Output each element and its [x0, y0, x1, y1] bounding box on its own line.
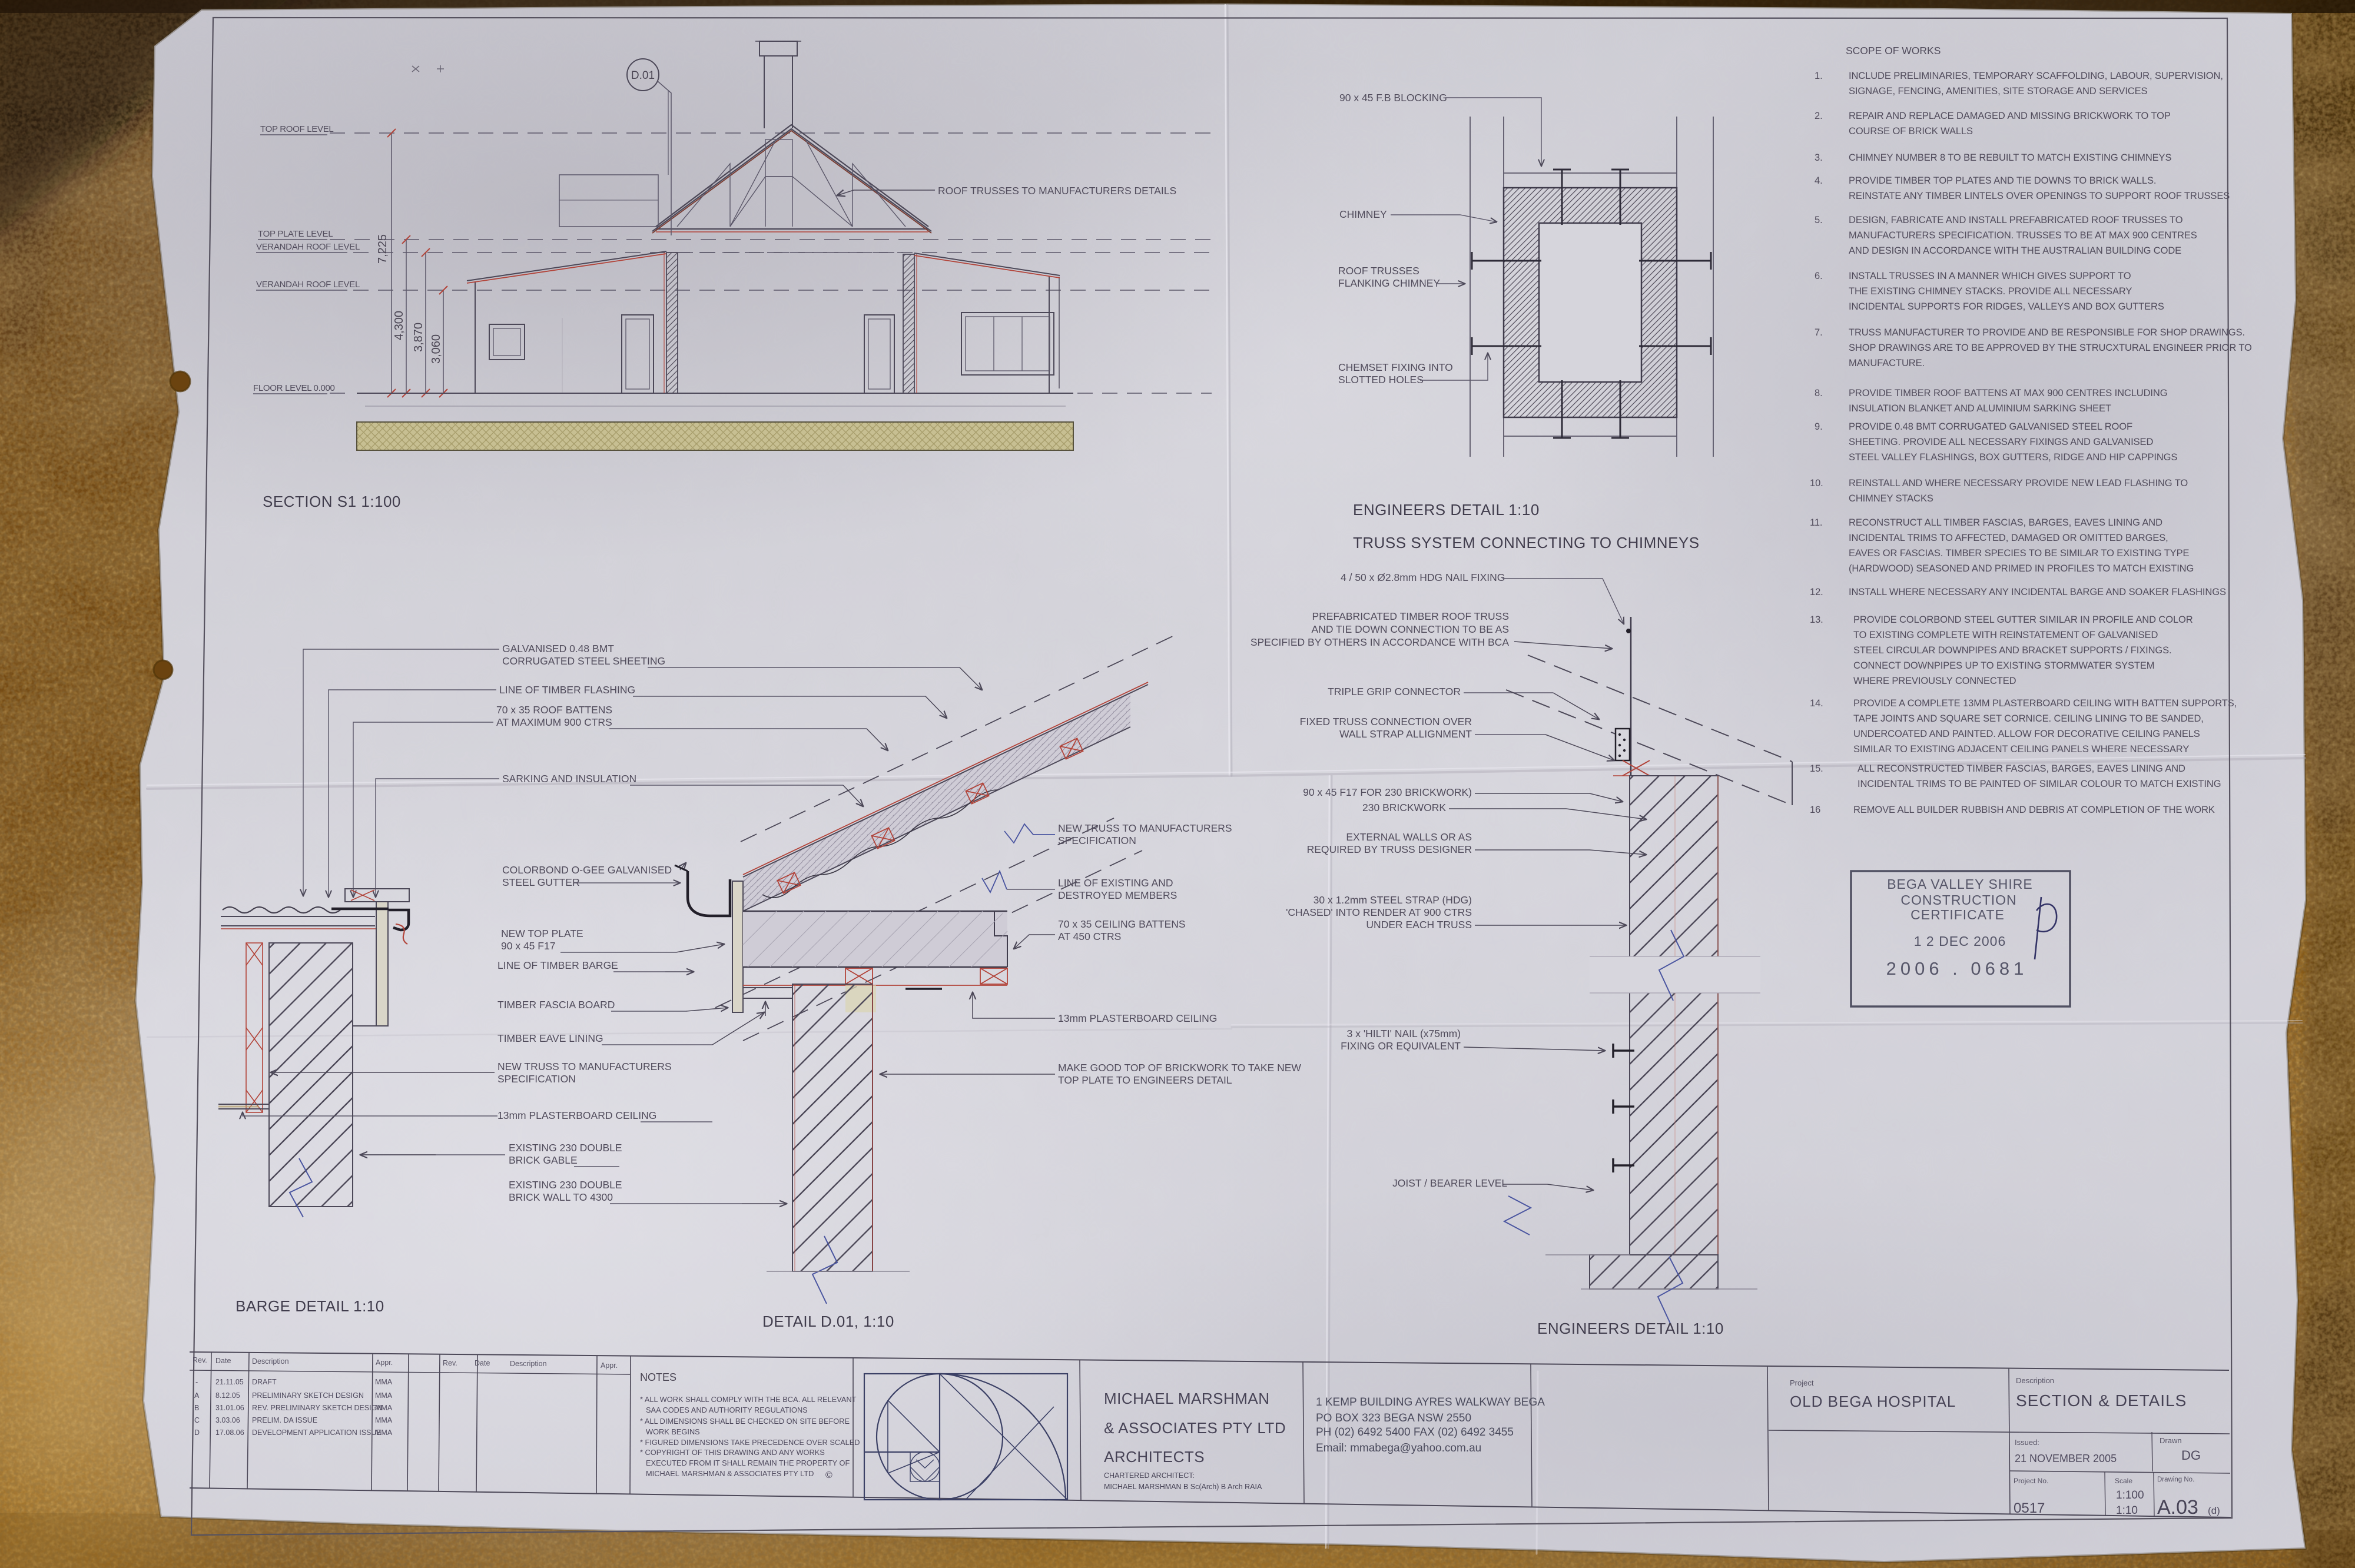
svg-text:3,870: 3,870 [412, 323, 425, 352]
svg-text:6.: 6. [1815, 271, 1823, 281]
svg-text:Issued:: Issued: [2015, 1438, 2039, 1447]
svg-text:Appr.: Appr. [601, 1361, 618, 1370]
svg-text:21 NOVEMBER 2005: 21 NOVEMBER 2005 [2015, 1453, 2117, 1464]
svg-text:ENGINEERS DETAIL 1:10: ENGINEERS DETAIL 1:10 [1353, 501, 1540, 519]
svg-text:Date: Date [215, 1357, 231, 1365]
svg-text:(d): (d) [2208, 1505, 2220, 1516]
svg-text:A.03: A.03 [2157, 1496, 2198, 1519]
svg-text:MAKE GOOD TOP OF BRICKWORK TO: MAKE GOOD TOP OF BRICKWORK TO TAKE NEW [1058, 1062, 1301, 1074]
svg-text:COLORBOND O-GEE GALVANISED: COLORBOND O-GEE GALVANISED [502, 864, 672, 876]
svg-text:4,300: 4,300 [393, 311, 406, 340]
svg-text:'CHASED' INTO RENDER AT 900 CT: 'CHASED' INTO RENDER AT 900 CTRS [1286, 906, 1472, 918]
svg-text:PRELIM. DA ISSUE: PRELIM. DA ISSUE [252, 1416, 317, 1424]
svg-text:-: - [195, 1378, 198, 1386]
svg-text:D: D [194, 1429, 200, 1437]
svg-text:NEW TRUSS TO MANUFACTURERS: NEW TRUSS TO MANUFACTURERS [1058, 822, 1232, 834]
svg-text:PREFABRICATED TIMBER ROOF TRUS: PREFABRICATED TIMBER ROOF TRUSS [1312, 610, 1510, 622]
svg-text:& ASSOCIATES PTY LTD: & ASSOCIATES PTY LTD [1104, 1419, 1286, 1437]
svg-text:AT MAXIMUM 900 CTRS: AT MAXIMUM 900 CTRS [496, 716, 612, 728]
svg-text:1:100: 1:100 [2116, 1489, 2144, 1501]
svg-text:SECTION S1 1:100: SECTION S1 1:100 [263, 493, 401, 510]
svg-text:MICHAEL MARSHMAN B Sc(Arch) B: MICHAEL MARSHMAN B Sc(Arch) B Arch RAIA [1104, 1483, 1262, 1491]
svg-text:Description: Description [2016, 1376, 2054, 1385]
svg-text:PROVIDE A COMPLETE 13MM PLASTE: PROVIDE A COMPLETE 13MM PLASTERBOARD CEI… [1853, 698, 2237, 709]
svg-text:PROVIDE TIMBER TOP PLATES AND: PROVIDE TIMBER TOP PLATES AND TIE DOWNS … [1849, 175, 2156, 186]
svg-text:CONNECT DOWNPIPES UP TO EXISTI: CONNECT DOWNPIPES UP TO EXISTING STORMWA… [1853, 660, 2154, 671]
svg-text:4.: 4. [1815, 175, 1823, 186]
svg-text:MANUFACTURERS SPECIFICATION. T: MANUFACTURERS SPECIFICATION. TRUSSES TO … [1849, 230, 2197, 241]
svg-text:BRICK GABLE: BRICK GABLE [509, 1154, 578, 1166]
svg-text:11.: 11. [1810, 517, 1822, 528]
svg-text:DG: DG [2181, 1448, 2201, 1463]
svg-text:SPECIFICATION: SPECIFICATION [497, 1073, 576, 1085]
svg-text:1:10: 1:10 [2116, 1504, 2138, 1517]
svg-text:* COPYRIGHT OF THIS DRAWING AN: * COPYRIGHT OF THIS DRAWING AND ANY WORK… [640, 1448, 825, 1457]
svg-text:STEEL GUTTER: STEEL GUTTER [502, 876, 580, 888]
svg-text:CHIMNEY NUMBER 8 TO BE REBUILT: CHIMNEY NUMBER 8 TO BE REBUILT TO MATCH … [1849, 152, 2171, 163]
svg-text:TRUSS MANUFACTURER TO PROVIDE: TRUSS MANUFACTURER TO PROVIDE AND BE RES… [1849, 327, 2245, 338]
svg-text:STEEL CIRCULAR DOWNPIPES AND B: STEEL CIRCULAR DOWNPIPES AND BRACKET SUP… [1853, 645, 2172, 656]
svg-text:8.: 8. [1815, 388, 1823, 398]
svg-text:TOP PLATE LEVEL: TOP PLATE LEVEL [258, 229, 333, 239]
svg-text:1 2 DEC 2006: 1 2 DEC 2006 [1914, 934, 2006, 949]
svg-text:MMA: MMA [375, 1391, 393, 1400]
svg-text:WORK BEGINS: WORK BEGINS [646, 1427, 700, 1436]
svg-text:9.: 9. [1815, 421, 1823, 432]
svg-text:12.: 12. [1810, 587, 1823, 597]
svg-text:EXISTING 230 DOUBLE: EXISTING 230 DOUBLE [509, 1179, 622, 1191]
svg-text:SLOTTED HOLES: SLOTTED HOLES [1338, 374, 1424, 386]
svg-text:4 / 50 x Ø2.8mm HDG NAIL FIXIN: 4 / 50 x Ø2.8mm HDG NAIL FIXING [1341, 572, 1505, 583]
svg-text:UNDERCOATED AND PAINTED. ALLOW: UNDERCOATED AND PAINTED. ALLOW FOR DECOR… [1853, 729, 2200, 739]
svg-text:WALL STRAP ALLIGNMENT: WALL STRAP ALLIGNMENT [1339, 728, 1472, 740]
svg-text:TRIPLE GRIP CONNECTOR: TRIPLE GRIP CONNECTOR [1328, 686, 1461, 697]
svg-text:1 KEMP BUILDING AYRES WALKWAY: 1 KEMP BUILDING AYRES WALKWAY BEGA [1316, 1396, 1545, 1408]
svg-text:SARKING AND INSULATION: SARKING AND INSULATION [502, 773, 636, 785]
svg-text:OLD BEGA HOSPITAL: OLD BEGA HOSPITAL [1790, 1393, 1956, 1410]
svg-text:EXISTING 230 DOUBLE: EXISTING 230 DOUBLE [509, 1142, 622, 1154]
svg-text:ARCHITECTS: ARCHITECTS [1104, 1448, 1205, 1466]
svg-text:MICHAEL MARSHMAN: MICHAEL MARSHMAN [1104, 1390, 1270, 1407]
svg-text:Scale: Scale [2115, 1477, 2132, 1485]
svg-text:Project: Project [1790, 1378, 1814, 1387]
svg-text:DEVELOPMENT APPLICATION ISSUE: DEVELOPMENT APPLICATION ISSUE [252, 1429, 382, 1437]
svg-text:90 x 45 F.B BLOCKING: 90 x 45 F.B BLOCKING [1339, 92, 1447, 104]
svg-text:21.11.05: 21.11.05 [215, 1378, 244, 1386]
svg-text:Date: Date [475, 1359, 490, 1367]
svg-text:13mm PLASTERBOARD CEILING: 13mm PLASTERBOARD CEILING [1058, 1012, 1217, 1024]
svg-text:ROOF TRUSSES: ROOF TRUSSES [1338, 265, 1419, 277]
svg-text:ENGINEERS DETAIL 1:10: ENGINEERS DETAIL 1:10 [1537, 1320, 1724, 1337]
svg-text:PH (02) 6492 5400 FAX (02) 6: PH (02) 6492 5400 FAX (02) 6492 3455 [1316, 1426, 1514, 1439]
svg-text:SPECIFICATION: SPECIFICATION [1058, 835, 1136, 846]
svg-text:MANUFACTURE.: MANUFACTURE. [1849, 358, 1925, 368]
svg-text:PROVIDE COLORBOND STEEL GUTTER: PROVIDE COLORBOND STEEL GUTTER SIMILAR I… [1853, 614, 2193, 625]
svg-text:7,225: 7,225 [376, 234, 389, 264]
svg-text:BARGE DETAIL 1:10: BARGE DETAIL 1:10 [235, 1297, 384, 1315]
svg-text:SIGNAGE, FENCING, AMENITIES, S: SIGNAGE, FENCING, AMENITIES, SITE STORAG… [1849, 86, 2148, 97]
svg-text:70 x 35 ROOF BATTENS: 70 x 35 ROOF BATTENS [496, 704, 612, 716]
svg-text:FIXING OR EQUIVALENT: FIXING OR EQUIVALENT [1341, 1040, 1461, 1052]
svg-text:AT 450 CTRS: AT 450 CTRS [1058, 931, 1121, 942]
svg-text:NEW TRUSS TO MANUFACTURERS: NEW TRUSS TO MANUFACTURERS [497, 1061, 672, 1072]
svg-text:BRICK WALL TO 4300: BRICK WALL TO 4300 [509, 1191, 613, 1203]
svg-text:EAVES OR FASCIAS. TIMBER SPECI: EAVES OR FASCIAS. TIMBER SPECIES TO BE S… [1849, 548, 2189, 559]
svg-text:(HARDWOOD) SEASONED AND PRIMED: (HARDWOOD) SEASONED AND PRIMED IN PROFIL… [1849, 563, 2194, 574]
svg-text:REQUIRED BY TRUSS DESIGNER: REQUIRED BY TRUSS DESIGNER [1307, 843, 1472, 855]
svg-text:TOP ROOF LEVEL: TOP ROOF LEVEL [260, 124, 333, 134]
svg-text:B: B [194, 1404, 199, 1412]
svg-text:A: A [194, 1391, 200, 1400]
svg-text:INCIDENTAL TRIMS TO AFFECTED,: INCIDENTAL TRIMS TO AFFECTED, DAMAGED OR… [1849, 533, 2168, 543]
svg-text:©: © [825, 1470, 832, 1480]
svg-text:90 x 45 F17 FOR 230 BRICKWORK): 90 x 45 F17 FOR 230 BRICKWORK) [1303, 786, 1472, 798]
svg-text:SHEETING. PROVIDE ALL NECESSAR: SHEETING. PROVIDE ALL NECESSARY FIXINGS … [1849, 437, 2153, 447]
svg-text:AND DESIGN IN ACCORDANCE WITH: AND DESIGN IN ACCORDANCE WITH THE AUSTRA… [1849, 245, 2181, 256]
svg-text:D.01: D.01 [631, 69, 655, 82]
svg-text:BEGA VALLEY SHIRE: BEGA VALLEY SHIRE [1887, 876, 2033, 892]
svg-text:UNDER EACH TRUSS: UNDER EACH TRUSS [1366, 919, 1472, 931]
svg-text:REPAIR AND REPLACE DAMAGED AND: REPAIR AND REPLACE DAMAGED AND MISSING B… [1849, 111, 2171, 121]
svg-text:3,060: 3,060 [430, 334, 443, 364]
svg-text:INSULATION BLANKET AND ALUMINI: INSULATION BLANKET AND ALUMINIUM SARKING… [1849, 403, 2111, 414]
svg-text:NEW TOP PLATE: NEW TOP PLATE [501, 928, 583, 939]
svg-text:PROVIDE 0.48 BMT CORRUGATED GA: PROVIDE 0.48 BMT CORRUGATED GALVANISED S… [1849, 421, 2132, 432]
svg-text:MICHAEL MARSHMAN & ASSOCIATES: MICHAEL MARSHMAN & ASSOCIATES PTY LTD [646, 1469, 814, 1478]
svg-text:TOP PLATE TO ENGINEERS DETAIL: TOP PLATE TO ENGINEERS DETAIL [1058, 1074, 1232, 1086]
svg-text:THE EXISTING CHIMNEY STACKS. P: THE EXISTING CHIMNEY STACKS. PROVIDE ALL… [1849, 286, 2132, 297]
svg-text:TIMBER FASCIA BOARD: TIMBER FASCIA BOARD [497, 999, 615, 1011]
svg-text:JOIST / BEARER LEVEL: JOIST / BEARER LEVEL [1392, 1177, 1507, 1189]
svg-text:C: C [194, 1416, 200, 1424]
svg-text:DESIGN, FABRICATE AND INSTALL: DESIGN, FABRICATE AND INSTALL PREFABRICA… [1849, 215, 2183, 225]
svg-text:CHARTERED ARCHITECT:: CHARTERED ARCHITECT: [1104, 1471, 1195, 1480]
svg-text:VERANDAH ROOF LEVEL: VERANDAH ROOF LEVEL [256, 242, 360, 252]
svg-text:* FIGURED DIMENSIONS TAKE PREC: * FIGURED DIMENSIONS TAKE PRECEDENCE OVE… [640, 1438, 860, 1447]
svg-text:CHIMNEY STACKS: CHIMNEY STACKS [1849, 493, 1933, 504]
svg-text:10.: 10. [1810, 478, 1823, 489]
svg-text:FLANKING CHIMNEY: FLANKING CHIMNEY [1338, 277, 1440, 289]
svg-text:REINSTATE ANY TIMBER LINTELS O: REINSTATE ANY TIMBER LINTELS OVER OPENIN… [1849, 191, 2230, 201]
svg-text:Drawing No.: Drawing No. [2157, 1476, 2194, 1483]
svg-text:SAA CODES AND AUTHORITY REGULA: SAA CODES AND AUTHORITY REGULATIONS [646, 1406, 808, 1414]
svg-text:GALVANISED 0.48 BMT: GALVANISED 0.48 BMT [502, 643, 614, 655]
svg-text:TO EXISTING COMPLETE WITH REIN: TO EXISTING COMPLETE WITH REINSTATEMENT … [1853, 630, 2158, 640]
svg-text:* ALL WORK SHALL COMPLY WITH T: * ALL WORK SHALL COMPLY WITH THE BCA. AL… [640, 1395, 857, 1404]
svg-text:16: 16 [1810, 805, 1820, 815]
svg-text:Description: Description [252, 1357, 289, 1366]
svg-text:SHOP DRAWINGS ARE TO BE APPROV: SHOP DRAWINGS ARE TO BE APPROVED BY THE … [1849, 343, 2252, 353]
svg-text:INCIDENTAL TRIMS TO BE PAINTED: INCIDENTAL TRIMS TO BE PAINTED OF SIMILA… [1858, 779, 2221, 789]
svg-text:1.: 1. [1815, 71, 1823, 81]
svg-text:CERTIFICATE: CERTIFICATE [1910, 907, 2005, 922]
svg-text:MMA: MMA [375, 1404, 393, 1412]
svg-text:STEEL VALLEY FLASHINGS, BOX GU: STEEL VALLEY FLASHINGS, BOX GUTTERS, RID… [1849, 452, 2177, 463]
svg-text:ROOF TRUSSES TO MANUFACTURERS: ROOF TRUSSES TO MANUFACTURERS DETAILS [938, 185, 1176, 197]
svg-text:RECONSTRUCT ALL TIMBER FASCIAS: RECONSTRUCT ALL TIMBER FASCIAS, BARGES, … [1849, 517, 2162, 528]
svg-text:30 x 1.2mm STEEL STRAP (HDG): 30 x 1.2mm STEEL STRAP (HDG) [1314, 894, 1472, 906]
svg-text:5.: 5. [1815, 215, 1823, 225]
svg-text:0517: 0517 [2014, 1500, 2045, 1516]
svg-text:EXECUTED FROM IT SHALL REMAIN: EXECUTED FROM IT SHALL REMAIN THE PROPER… [646, 1459, 850, 1467]
svg-text:31.01.06: 31.01.06 [215, 1404, 244, 1412]
svg-text:Project No.: Project No. [2014, 1477, 2048, 1485]
svg-text:PROVIDE TIMBER ROOF BATTENS AT: PROVIDE TIMBER ROOF BATTENS AT MAX 900 C… [1849, 388, 2167, 398]
svg-text:INCIDENTAL SUPPORTS FOR RIDGES: INCIDENTAL SUPPORTS FOR RIDGES, VALLEYS … [1849, 301, 2164, 312]
svg-text:SPECIFIED BY OTHERS IN ACCORDA: SPECIFIED BY OTHERS IN ACCORDANCE WITH B… [1251, 636, 1510, 648]
svg-text:REV. PRELIMINARY SKETCH DESIGN: REV. PRELIMINARY SKETCH DESIGN [252, 1404, 382, 1412]
svg-text:70 x 35 CEILING BATTENS: 70 x 35 CEILING BATTENS [1058, 918, 1186, 930]
svg-text:8.12.05: 8.12.05 [215, 1391, 240, 1400]
svg-text:3.: 3. [1815, 152, 1823, 163]
svg-text:3 x 'HILTI' NAIL (x75mm): 3 x 'HILTI' NAIL (x75mm) [1347, 1028, 1461, 1039]
svg-text:WHERE PREVIOUSLY CONNECTED: WHERE PREVIOUSLY CONNECTED [1853, 676, 2016, 686]
svg-text:2006 . 0681: 2006 . 0681 [1886, 958, 2028, 979]
svg-text:NOTES: NOTES [640, 1371, 676, 1383]
svg-text:PO BOX 323 BEGA NSW 2550: PO BOX 323 BEGA NSW 2550 [1316, 1412, 1471, 1424]
svg-text:Appr.: Appr. [376, 1358, 393, 1367]
svg-text:CHEMSET FIXING INTO: CHEMSET FIXING INTO [1338, 361, 1453, 373]
svg-text:3.03.06: 3.03.06 [215, 1416, 240, 1424]
svg-text:2.: 2. [1815, 111, 1823, 121]
svg-text:CONSTRUCTION: CONSTRUCTION [1900, 892, 2016, 908]
svg-text:LINE OF TIMBER FLASHING: LINE OF TIMBER FLASHING [499, 684, 635, 696]
svg-text:SIMILAR TO EXISTING ADJACENT C: SIMILAR TO EXISTING ADJACENT CEILING PAN… [1853, 744, 2189, 755]
svg-text:ALL RECONSTRUCTED TIMBER FASCI: ALL RECONSTRUCTED TIMBER FASCIAS, BARGES… [1858, 763, 2185, 774]
svg-text:REINSTALL AND WHERE NECESSARY: REINSTALL AND WHERE NECESSARY PROVIDE NE… [1849, 478, 2188, 489]
svg-text:INCLUDE PRELIMINARIES, TEMPORA: INCLUDE PRELIMINARIES, TEMPORARY SCAFFOL… [1849, 71, 2223, 81]
svg-text:MMA: MMA [375, 1416, 393, 1424]
svg-text:230 BRICKWORK: 230 BRICKWORK [1362, 802, 1446, 813]
svg-text:FIXED TRUSS CONNECTION OVER: FIXED TRUSS CONNECTION OVER [1300, 716, 1472, 727]
svg-text:DESTROYED MEMBERS: DESTROYED MEMBERS [1058, 889, 1177, 901]
svg-text:TAPE JOINTS AND SQUARE SET COR: TAPE JOINTS AND SQUARE SET CORNICE. CEIL… [1853, 713, 2204, 724]
svg-text:13.: 13. [1810, 614, 1823, 625]
svg-text:COURSE OF BRICK WALLS: COURSE OF BRICK WALLS [1849, 126, 1973, 137]
svg-text:17.08.06: 17.08.06 [215, 1429, 244, 1437]
svg-text:Email: mmabega@yahoo.com.au: Email: mmabega@yahoo.com.au [1316, 1442, 1481, 1454]
svg-text:Description: Description [510, 1360, 547, 1368]
svg-text:CORRUGATED STEEL SHEETING: CORRUGATED STEEL SHEETING [502, 655, 665, 667]
svg-text:7.: 7. [1815, 327, 1823, 338]
svg-text:CHIMNEY: CHIMNEY [1339, 208, 1387, 220]
svg-text:Rev.: Rev. [193, 1356, 207, 1364]
svg-text:15.: 15. [1810, 763, 1823, 774]
svg-text:* ALL DIMENSIONS SHALL BE CHEC: * ALL DIMENSIONS SHALL BE CHECKED ON SIT… [640, 1417, 850, 1426]
svg-text:SECTION & DETAILS: SECTION & DETAILS [2016, 1391, 2187, 1410]
svg-text:INSTALL WHERE NECESSARY ANY IN: INSTALL WHERE NECESSARY ANY INCIDENTAL B… [1849, 587, 2226, 597]
svg-text:Rev.: Rev. [443, 1359, 457, 1367]
svg-text:SCOPE OF WORKS: SCOPE OF WORKS [1846, 45, 1941, 57]
svg-text:14.: 14. [1810, 698, 1823, 709]
svg-text:90 x 45 F17: 90 x 45 F17 [501, 940, 555, 952]
svg-text:MMA: MMA [375, 1378, 393, 1386]
svg-text:MMA: MMA [375, 1429, 393, 1437]
svg-text:FLOOR LEVEL 0.000: FLOOR LEVEL 0.000 [253, 383, 335, 393]
svg-text:VERANDAH ROOF LEVEL: VERANDAH ROOF LEVEL [256, 280, 360, 290]
svg-text:LINE OF TIMBER BARGE: LINE OF TIMBER BARGE [497, 959, 618, 971]
svg-text:EXTERNAL WALLS OR AS: EXTERNAL WALLS OR AS [1346, 831, 1472, 843]
svg-text:TRUSS SYSTEM CONNECTING TO CHI: TRUSS SYSTEM CONNECTING TO CHIMNEYS [1353, 534, 1700, 552]
svg-text:13mm PLASTERBOARD CEILING: 13mm PLASTERBOARD CEILING [497, 1109, 656, 1121]
svg-text:LINE OF EXISTING AND: LINE OF EXISTING AND [1058, 877, 1173, 889]
svg-text:DETAIL D.01, 1:10: DETAIL D.01, 1:10 [762, 1313, 894, 1330]
svg-text:PRELIMINARY SKETCH DESIGN: PRELIMINARY SKETCH DESIGN [252, 1391, 364, 1400]
svg-text:REMOVE ALL BUILDER RUBBISH AND: REMOVE ALL BUILDER RUBBISH AND DEBRIS AT… [1853, 805, 2215, 815]
svg-text:AND TIE DOWN CONNECTION TO BE: AND TIE DOWN CONNECTION TO BE AS [1312, 623, 1509, 635]
svg-text:TIMBER EAVE LINING: TIMBER EAVE LINING [497, 1032, 603, 1044]
svg-text:DRAFT: DRAFT [252, 1378, 277, 1386]
svg-text:INSTALL TRUSSES IN A MANNER WH: INSTALL TRUSSES IN A MANNER WHICH GIVES … [1849, 271, 2131, 281]
svg-text:Drawn: Drawn [2160, 1436, 2182, 1445]
